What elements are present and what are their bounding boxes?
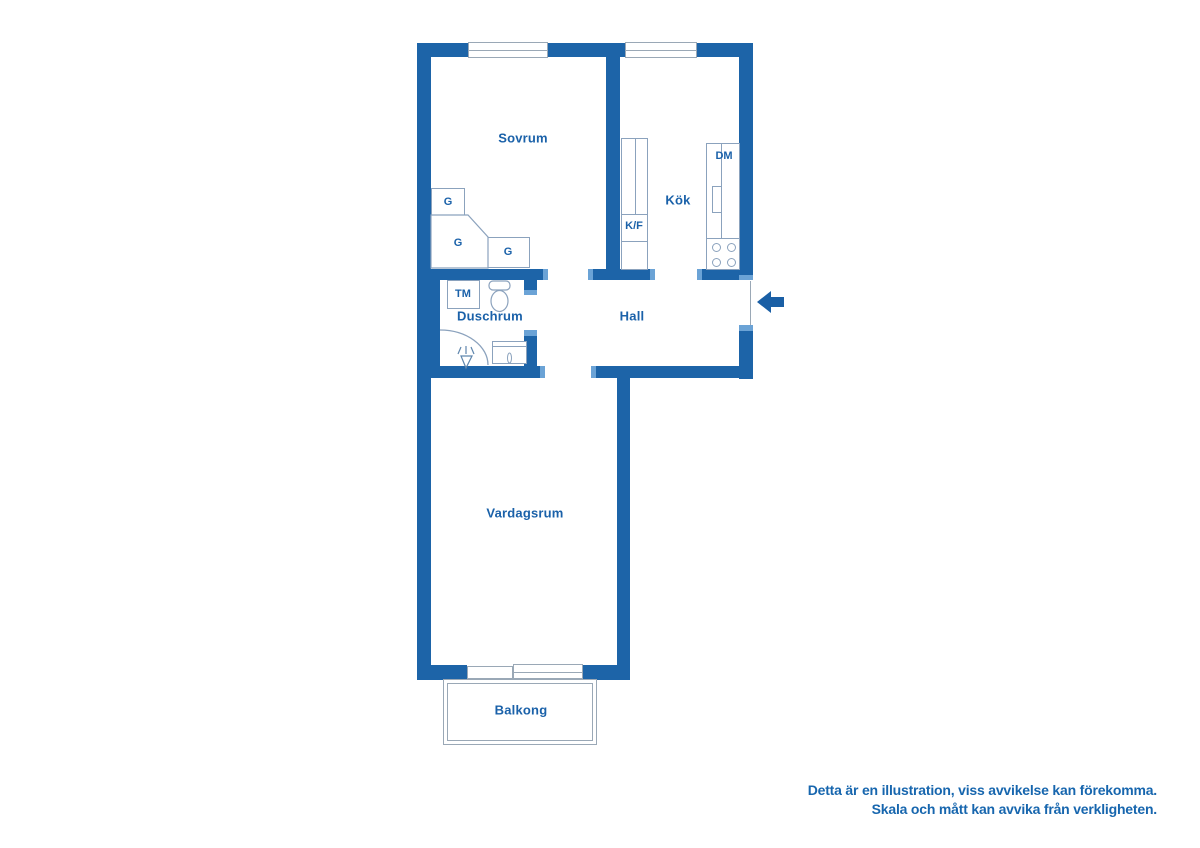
disclaimer-line-2: Skala och mått kan avvika från verklighe… [808,800,1157,819]
wall-top-mid [548,43,625,57]
jamb-entrance-bottom [739,325,753,331]
fixture-label-dishwasher: DM [715,150,732,162]
wall-bottom-right [583,665,630,680]
fridge-freezer-shelf-bottom [622,241,647,242]
window-kok [625,42,697,58]
wall-vardagsrum-right [617,378,630,666]
fixture-label-wardrobe-1: G [444,196,453,208]
disclaimer-text: Detta är en illustration, viss avvikelse… [808,781,1157,819]
jamb-vardagsrum-opening-right [591,366,596,378]
wall-bottom-left [417,665,467,680]
room-label-hall: Hall [620,309,645,324]
jamb-kitchen-door-left [650,269,655,280]
stove-burner-2 [727,243,736,252]
window-kok-mullion [626,50,696,51]
shower-curtain-arc [440,330,488,365]
jamb-sovrum-door-left [543,269,548,280]
window-sovrum-mullion [469,50,547,51]
entrance-threshold-line [750,281,751,325]
shower-head-icon [458,346,474,368]
kitchen-counter [706,143,740,270]
kitchen-sink [712,186,722,213]
jamb-duschrum-door-bottom [524,330,537,336]
stove-burner-3 [712,258,721,267]
bathroom-sink [492,341,527,364]
room-label-balkong: Balkong [495,703,548,718]
window-sovrum [468,42,548,58]
floor-plan-canvas: Sovrum Kök Hall Duschrum Vardagsrum Balk… [0,0,1200,848]
fixture-label-wardrobe-3: G [504,246,513,258]
disclaimer-line-1: Detta är en illustration, viss avvikelse… [808,781,1157,800]
window-vardagsrum [467,666,513,679]
stove-burner-4 [727,258,736,267]
wall-right-upper [739,43,753,280]
jamb-vardagsrum-opening-left [540,366,545,378]
entrance-arrow-icon [757,291,784,313]
wall-hall-bottom [591,366,753,378]
toilet-tank [489,281,510,290]
balcony-door-mullion [514,672,582,673]
stove-separator [707,238,739,239]
fridge-freezer-cabinet [621,138,648,270]
room-label-duschrum: Duschrum [457,309,523,324]
fixture-label-washing-machine: TM [455,288,471,300]
room-label-sovrum: Sovrum [498,131,548,146]
room-label-vardagsrum: Vardagsrum [486,506,563,521]
fixture-shapes-overlay [0,0,1200,848]
wall-duschrum-west-lining [429,269,440,378]
bathroom-sink-rim [493,346,526,347]
jamb-duschrum-door-top [524,290,537,295]
jamb-sovrum-door-right [588,269,593,280]
fridge-freezer-divider [635,139,636,214]
wall-divider-sovrum-kok [606,57,620,269]
balcony-door [513,664,583,679]
fixture-label-fridge-freezer: K/F [625,220,643,232]
jamb-kitchen-door-right [697,269,702,280]
wall-kitchen-bottom-left [588,269,655,280]
fixture-label-wardrobe-2: G [454,237,463,249]
wall-duschrum-bottom [417,366,545,378]
fridge-freezer-shelf-top [622,214,647,215]
jamb-entrance-top [739,275,753,280]
stove-burner-1 [712,243,721,252]
room-label-kok: Kök [665,193,690,208]
